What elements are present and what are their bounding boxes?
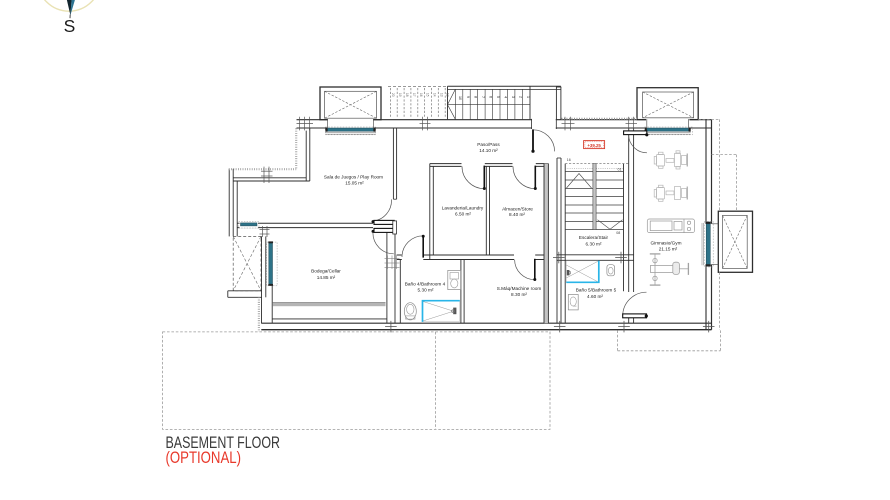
svg-text:15.05 m²: 15.05 m² <box>345 181 364 186</box>
svg-text:13: 13 <box>440 93 444 97</box>
svg-text:7: 7 <box>481 96 485 98</box>
svg-text:8: 8 <box>474 96 478 98</box>
svg-text:21.15 m²: 21.15 m² <box>659 246 678 251</box>
svg-text:6.30 m²: 6.30 m² <box>586 241 602 246</box>
svg-text:14.10 m²: 14.10 m² <box>479 148 498 153</box>
svg-text:1: 1 <box>526 96 530 98</box>
svg-text:18: 18 <box>405 93 409 97</box>
svg-text:01: 01 <box>618 168 622 172</box>
svg-text:Bodega/Cellar: Bodega/Cellar <box>311 269 341 274</box>
svg-text:Lavanderia/Laundry: Lavanderia/Laundry <box>442 206 484 211</box>
svg-text:8.30 m²: 8.30 m² <box>511 292 527 297</box>
svg-text:Baño 4/Bathroom 4: Baño 4/Bathroom 4 <box>405 281 446 286</box>
svg-text:17: 17 <box>412 93 416 97</box>
svg-text:+39.25: +39.25 <box>587 143 601 148</box>
svg-text:Paso/Pass: Paso/Pass <box>477 142 500 147</box>
svg-text:9: 9 <box>466 96 470 98</box>
svg-text:6: 6 <box>489 96 493 98</box>
svg-text:19: 19 <box>398 93 402 97</box>
svg-text:Gimnasio/Gym: Gimnasio/Gym <box>651 240 682 245</box>
svg-text:15: 15 <box>426 93 430 97</box>
svg-text:8.40 m²: 8.40 m² <box>509 212 525 217</box>
svg-text:20: 20 <box>391 93 395 97</box>
svg-text:Sala de Juegos / Play Room: Sala de Juegos / Play Room <box>324 174 383 179</box>
svg-text:Almacen/Store: Almacen/Store <box>502 206 533 211</box>
svg-text:5.30 m²: 5.30 m² <box>418 287 434 292</box>
svg-text:2: 2 <box>519 96 523 98</box>
svg-text:12: 12 <box>446 93 450 97</box>
svg-text:08: 08 <box>616 231 620 235</box>
svg-text:4: 4 <box>504 96 508 98</box>
svg-text:16: 16 <box>419 93 423 97</box>
svg-text:3: 3 <box>511 96 515 98</box>
svg-text:14: 14 <box>433 93 437 97</box>
svg-text:5: 5 <box>496 96 500 98</box>
svg-text:16: 16 <box>567 158 571 162</box>
svg-text:10: 10 <box>458 96 462 100</box>
svg-text:6.50 m²: 6.50 m² <box>455 211 471 216</box>
svg-text:S: S <box>64 16 76 36</box>
svg-text:S.Máq/Machine room: S.Máq/Machine room <box>497 286 542 291</box>
svg-text:4.60 m²: 4.60 m² <box>587 294 603 299</box>
svg-text:(OPTIONAL): (OPTIONAL) <box>166 449 242 467</box>
svg-text:Baño 5/Bathroom 5: Baño 5/Bathroom 5 <box>576 288 617 293</box>
svg-text:Escalera/Stair: Escalera/Stair <box>579 235 609 240</box>
svg-text:14.85 m²: 14.85 m² <box>317 275 336 280</box>
